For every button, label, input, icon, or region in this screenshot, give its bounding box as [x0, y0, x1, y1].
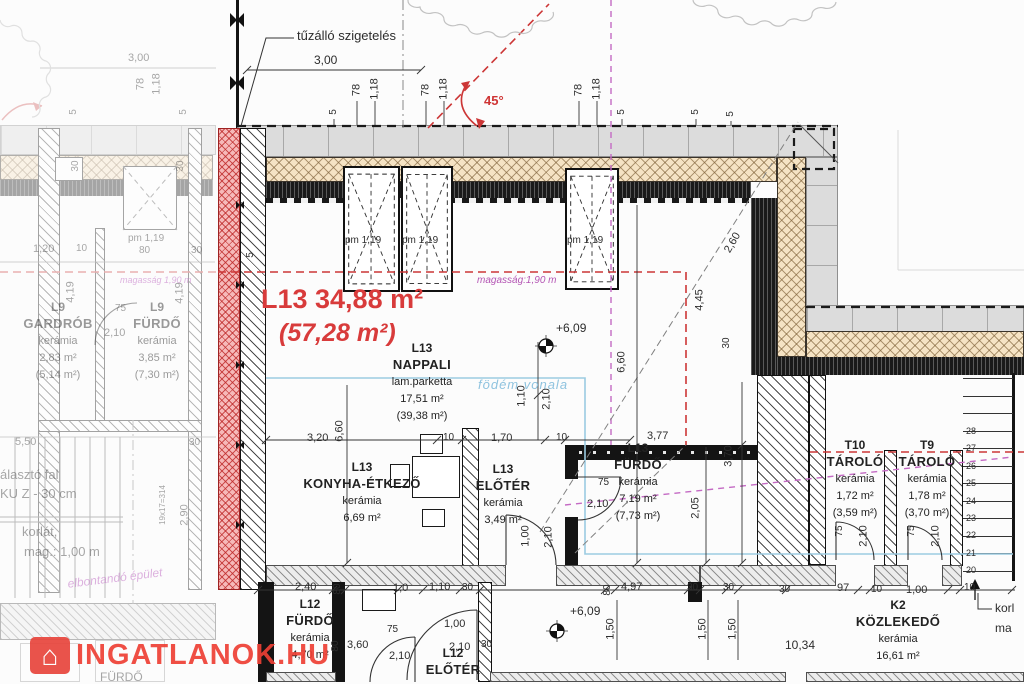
stair-tread-number: 21 [966, 549, 976, 558]
dim-label: 1,00 [444, 619, 465, 630]
apartment-area-headline: L13 34,88 m² [261, 284, 423, 315]
dim-label: 6,60 [335, 420, 346, 441]
dim-label: 75 [598, 478, 609, 488]
room-gross: (3,59 m²) [827, 504, 884, 522]
stair-tread-number: 27 [966, 444, 976, 453]
room-area: 1,72 m² [827, 489, 884, 504]
dim-label: 1,50 [698, 618, 709, 639]
dim-label: 75 [835, 525, 845, 536]
house-icon: ⌂ [30, 637, 70, 674]
dim-label: 1,10 [429, 582, 450, 593]
tree-outline [408, 0, 836, 37]
roof-slope-lines [540, 122, 798, 553]
room-gross: (39,38 m²) [392, 407, 453, 425]
dim-label: 1,00 [906, 585, 927, 596]
dim-label: 5 [726, 111, 736, 117]
room-label-l9-gardrób: L9GARDRÓBkerámia2,83 m²(5,14 m²) [23, 299, 92, 384]
railing-note: mag.: 1,00 m [24, 545, 100, 558]
dimension-lines [243, 66, 1016, 660]
room-name: TÁROLÓ [899, 453, 956, 470]
dim-label: 1,18 [152, 73, 163, 94]
room-name: FÜRDŐ [286, 612, 334, 629]
headroom-line-magenta [565, 0, 1013, 505]
room-id: L13 [392, 340, 453, 356]
room-floor: kerámia [856, 630, 940, 649]
dim-label: 1,18 [439, 78, 450, 99]
dim-label: 30 [687, 583, 698, 593]
dim-label: 1,10 [517, 385, 528, 406]
dim-label: pm 1,19 [128, 234, 164, 244]
dim-label: 3,60 [347, 640, 368, 651]
dim-label: 1,18 [370, 78, 381, 99]
room-label-t9-tároló: T9TÁROLÓkerámia1,78 m²(3,70 m²) [899, 437, 956, 522]
room-label-l13-konyha-étkező: L13KONYHA-ÉTKEZŐkerámia6,69 m² [303, 459, 420, 526]
dim-label: 10 [76, 244, 87, 254]
dim-label: 1,00 [521, 525, 532, 546]
room-name: GARDRÓB [23, 315, 92, 332]
room-floor: kerámia [899, 470, 956, 489]
roof-edge-dashed [237, 126, 1024, 307]
room-id: L12 [286, 596, 334, 612]
dim-label: 30 [723, 583, 734, 593]
room-name: ELŐTÉR [476, 477, 531, 494]
dim-label: 30 [722, 337, 732, 348]
dim-label: 78 [421, 84, 432, 96]
watermark: ⌂ INGATLANOK.HU [30, 637, 330, 674]
room-label-l12-előtér: L12ELŐTÉR [426, 645, 481, 678]
room-name: NAPPALI [392, 356, 453, 373]
skylight-label: pm 1,19 [567, 236, 603, 246]
room-floor: kerámia [23, 332, 92, 351]
dim-label: 4,97 [621, 582, 642, 593]
room-name: ELŐTÉR [426, 661, 481, 678]
dim-label: 1,20 [33, 244, 54, 255]
room-label-l13-fürdő: L13FÜRDŐkerámia7,19 m²(7,73 m²) [614, 440, 662, 525]
room-area: 3,49 m² [476, 513, 531, 528]
dim-label: 10 [871, 585, 882, 595]
dim-label: 2,10 [389, 651, 410, 662]
room-id: L9 [133, 299, 181, 315]
skylight-label: pm 1,19 [402, 236, 438, 246]
room-name: FÜRDŐ [614, 456, 662, 473]
room-floor: kerámia [476, 494, 531, 513]
room-floor: kerámia [614, 473, 662, 492]
dim-label: 5 [179, 109, 189, 115]
room-floor: lam.parketta [392, 373, 453, 392]
room-area: 2,83 m² [23, 351, 92, 366]
room-id: L13 [476, 461, 531, 477]
floor-plan: tűzálló szigetelés3,00781,18781,18781,18… [0, 0, 1024, 682]
room-id: L12 [426, 645, 481, 661]
room-area: 17,51 m² [392, 392, 453, 407]
dim-label: 2,10 [587, 499, 608, 510]
skylight-label: pm 1,19 [345, 236, 381, 246]
dim-label: 2,10 [931, 525, 942, 546]
dim-label: 5 [69, 109, 79, 115]
stair-tread-number: 24 [966, 497, 976, 506]
dim-label: 30 [481, 640, 492, 650]
stair-tread-number: 20 [966, 566, 976, 575]
room-id: T10 [827, 437, 884, 453]
railing-note-cut: korl [995, 602, 1014, 614]
dim-label: 30 [71, 160, 81, 171]
room-id: L13 [614, 440, 662, 456]
dim-label: 97 [837, 583, 849, 594]
stair-tread-number: 22 [966, 531, 976, 540]
dim-label: 2,10 [544, 526, 555, 547]
dim-label: 78 [352, 84, 363, 96]
dim-label: 1,18 [592, 78, 603, 99]
dim-label: magasság 1,90 m [120, 276, 192, 285]
dim-label: 3,70 [724, 445, 735, 466]
room-label-l13-előtér: L13ELŐTÉRkerámia3,49 m² [476, 461, 531, 528]
stair-note: 19x17=314 [159, 485, 167, 525]
dim-label: 3,20 [307, 433, 328, 444]
dim-label: 4,45 [695, 289, 706, 310]
arrow-head [476, 118, 485, 129]
stair-tread-number: 23 [966, 514, 976, 523]
room-id: K2 [856, 597, 940, 613]
room-area: 6,69 m² [303, 511, 420, 526]
dim-label: 10 [556, 433, 567, 443]
angle-label: 45° [484, 94, 504, 107]
room-gross: (7,73 m²) [614, 507, 662, 525]
stair-tread-number: 25 [966, 479, 976, 488]
dim-label: 5,50 [15, 437, 36, 448]
stair-tread-number: 26 [966, 462, 976, 471]
dim-label: 30 [191, 246, 202, 256]
apartment-gross-area: (57,28 m²) [279, 319, 396, 348]
dim-label: 10 [964, 583, 975, 593]
faint-context-line [898, 130, 1024, 270]
dim-label: 5 [329, 109, 339, 115]
room-gross: (3,70 m²) [899, 504, 956, 522]
dim-label: 30 [189, 438, 200, 448]
dim-label: 10,34 [785, 639, 815, 651]
dim-label: 80 [139, 246, 150, 256]
room-label-k2-közlekedő: K2KÖZLEKEDŐkerámia16,61 m² [856, 597, 940, 664]
height-line-label: magasság:1,90 m [477, 276, 557, 286]
dim-label: 2,10 [104, 328, 125, 339]
fire-insulation-label: tűzálló szigetelés [297, 29, 396, 42]
room-name: KÖZLEKEDŐ [856, 613, 940, 630]
watermark-text: INGATLANOK.HU [76, 639, 330, 672]
dim-label: 2,10 [859, 525, 870, 546]
room-name: KONYHA-ÉTKEZŐ [303, 475, 420, 492]
room-label-t10-tároló: T10TÁROLÓkerámia1,72 m²(3,59 m²) [827, 437, 884, 522]
dim-label: 3,00 [314, 54, 337, 66]
room-label-l13-nappali: L13NAPPALIlam.parketta17,51 m²(39,38 m²) [392, 340, 453, 425]
dim-label: 30 [176, 160, 186, 171]
dim-label: 80 [603, 584, 613, 595]
dim-label: 80 [333, 583, 343, 594]
stair-tread-number: 28 [966, 427, 976, 436]
dim-label: 2,10 [542, 388, 553, 409]
dim-label: 75 [387, 625, 398, 635]
height-limit-line-red [218, 4, 1024, 452]
dim-label: 1,50 [606, 618, 617, 639]
level-label: +6,09 [570, 605, 600, 617]
room-area: 16,61 m² [856, 649, 940, 664]
dim-label: 2,40 [295, 582, 316, 593]
room-id: L9 [23, 299, 92, 315]
dim-label: 10 [443, 433, 454, 443]
railing-note: korlát, [22, 525, 57, 538]
room-name: TÁROLÓ [827, 453, 884, 470]
dim-label: 78 [136, 78, 147, 90]
dim-label: 75 [115, 304, 126, 314]
wall-note: KU Z - 30 cm [0, 487, 77, 500]
dim-label: 5 [617, 109, 627, 115]
dim-label: 30 [779, 585, 790, 595]
room-label-l9-fürdő: L9FÜRDŐkerámia3,85 m²(7,30 m²) [133, 299, 181, 384]
dim-label: 30 [462, 583, 473, 593]
room-gross: (7,30 m²) [133, 366, 181, 384]
room-floor: kerámia [133, 332, 181, 351]
dim-label: 1,70 [491, 433, 512, 444]
dim-label: 78 [574, 84, 585, 96]
dim-label: 1,0 [393, 583, 408, 594]
dim-label: 1,50 [728, 618, 739, 639]
room-gross: (5,14 m²) [23, 366, 92, 384]
dim-label: 5 [246, 252, 256, 258]
room-name: FÜRDŐ [133, 315, 181, 332]
railing-note-cut: ma [995, 622, 1012, 634]
dim-label: 3,00 [128, 53, 149, 64]
wall-note: álasztó fal [0, 468, 59, 481]
room-id: T9 [899, 437, 956, 453]
dim-label: 6,60 [617, 351, 628, 372]
room-floor: kerámia [303, 492, 420, 511]
dim-label: 2,90 [180, 504, 191, 525]
room-area: 1,78 m² [899, 489, 956, 504]
dim-label: 2,05 [691, 497, 702, 518]
dim-label: 5 [691, 109, 701, 115]
room-floor: kerámia [827, 470, 884, 489]
room-area: 7,19 m² [614, 492, 662, 507]
room-id: L13 [303, 459, 420, 475]
dim-label: 75 [907, 525, 917, 536]
room-area: 3,85 m² [133, 351, 181, 366]
level-label: +6,09 [556, 322, 586, 334]
